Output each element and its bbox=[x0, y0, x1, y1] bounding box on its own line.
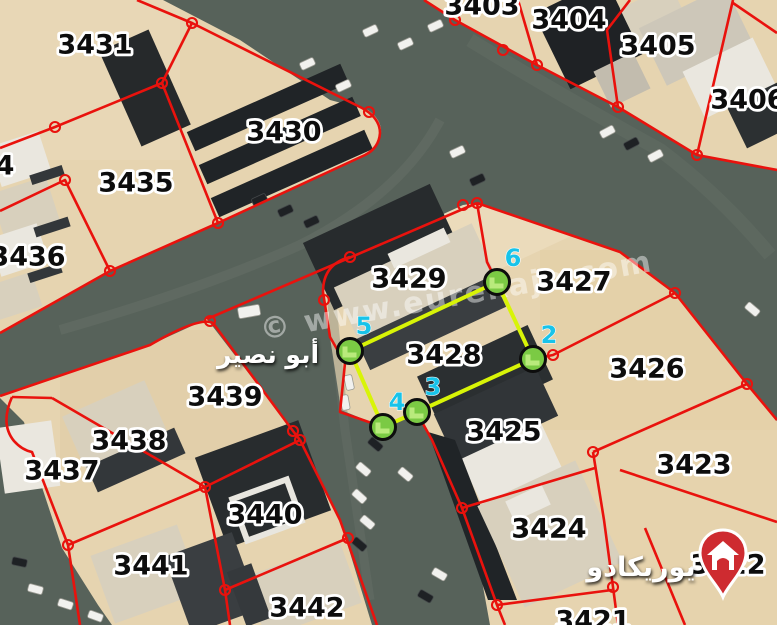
parcel-label-3431: 3431 bbox=[57, 30, 132, 61]
parcel-label-3428: 3428 bbox=[406, 340, 481, 371]
vertex-number-4: 4 bbox=[389, 388, 406, 416]
parcel-label-3429: 3429 bbox=[371, 264, 446, 295]
parcel-label-3427: 3427 bbox=[536, 267, 611, 298]
vertex-number-3: 3 bbox=[425, 373, 442, 401]
district-label-arabic: أبو نصير bbox=[215, 338, 319, 370]
parcel-label-3441: 3441 bbox=[113, 551, 188, 582]
vertex-number-6: 6 bbox=[505, 244, 522, 272]
parcel-label-3442: 3442 bbox=[269, 593, 344, 624]
parcel-label-3423: 3423 bbox=[656, 450, 731, 481]
parcel-label-3403: 3403 bbox=[444, 0, 519, 22]
parcel-label-3436: 3436 bbox=[0, 242, 66, 273]
parcel-label-3437: 3437 bbox=[24, 456, 99, 487]
parcel-label-3439: 3439 bbox=[187, 382, 262, 413]
vertex-number-5: 5 bbox=[356, 312, 373, 340]
parcel-label-3421: 3421 bbox=[555, 606, 630, 625]
parcel-label-4: 4 bbox=[0, 151, 14, 182]
parcel-label-3438: 3438 bbox=[91, 426, 166, 457]
parcel-label-3425: 3425 bbox=[466, 417, 541, 448]
parcel-label-3406: 3406 bbox=[710, 85, 777, 116]
parcel-label-3404: 3404 bbox=[531, 5, 606, 36]
parcel-label-3405: 3405 bbox=[620, 31, 695, 62]
parcel-label-3435: 3435 bbox=[98, 168, 173, 199]
parcel-label-3424: 3424 bbox=[511, 514, 586, 545]
brand-label-arabic: يوريكادو bbox=[584, 552, 695, 583]
map-canvas[interactable]: © www.eurekajo.com 343134303435434363403… bbox=[0, 0, 777, 625]
parcel-label-3426: 3426 bbox=[609, 354, 684, 385]
house-door bbox=[717, 558, 729, 570]
parcel-label-3440: 3440 bbox=[227, 500, 302, 531]
parcel-label-3430: 3430 bbox=[246, 117, 321, 148]
vertex-number-2: 2 bbox=[541, 321, 558, 349]
